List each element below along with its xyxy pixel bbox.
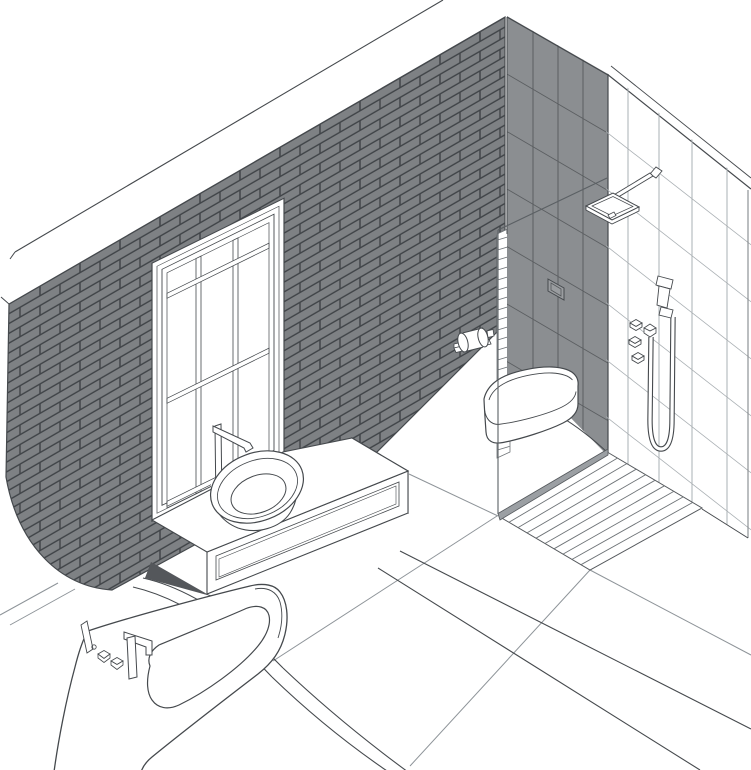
bathroom-isometric-drawing bbox=[0, 0, 751, 770]
window-muntin-vertical bbox=[196, 256, 201, 493]
bathroom-illustration-page: Isometric bathroom line illustration bbox=[0, 0, 751, 770]
